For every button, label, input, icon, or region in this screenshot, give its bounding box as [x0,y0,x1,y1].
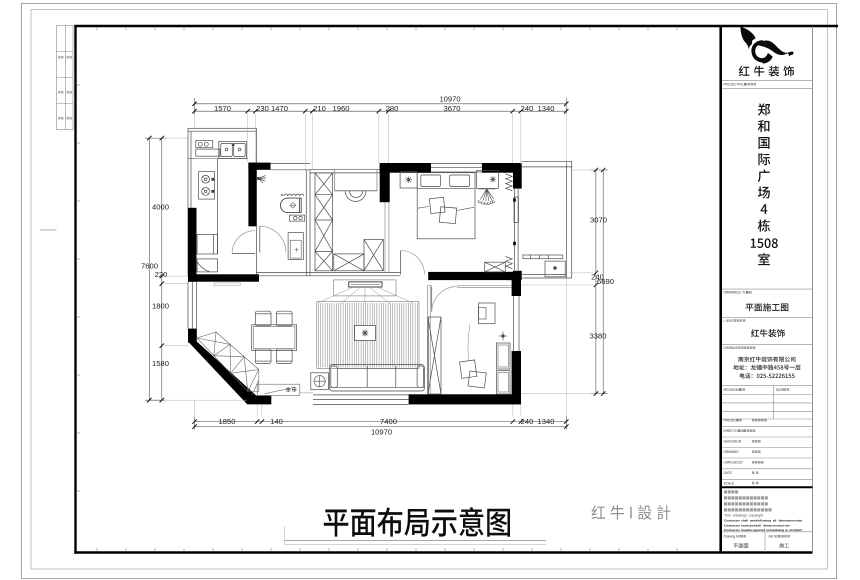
svg-text:SCALE: SCALE [724,481,734,485]
svg-text:PROJECT/FILE: PROJECT/FILE [724,83,747,87]
svg-text:immediately: immediately [766,528,784,532]
svg-text:work: work [749,519,758,523]
svg-text:DATE: DATE [724,471,732,475]
svg-text:240: 240 [521,417,534,426]
svg-text:240: 240 [521,104,534,113]
svg-text:dimensions: dimensions [779,519,796,523]
svg-text:This: This [724,514,731,518]
svg-text:1800: 1800 [152,302,169,311]
svg-text:architect: architect [789,528,802,532]
svg-text:1340: 1340 [538,417,555,426]
svg-text:1850: 1850 [219,417,236,426]
svg-text:220: 220 [155,270,168,279]
svg-text:GUIGUNLIN: GUIGUNLIN [724,440,742,444]
svg-text:4000: 4000 [152,203,169,212]
svg-text:check: check [748,523,757,527]
svg-text:drawings: drawings [733,514,748,518]
svg-text:280: 280 [386,104,399,113]
svg-text:140: 140 [270,417,283,426]
svg-text:3380: 3380 [590,332,607,341]
svg-text:DRAWING: DRAWING [724,450,740,454]
svg-text:following: following [757,519,771,523]
svg-text:1960: 1960 [333,104,350,113]
svg-text:7400: 7400 [380,417,397,426]
svg-text:REVISIONS: REVISIONS [724,388,741,392]
svg-text:copyright: copyright [749,514,764,518]
svg-text:CHROJECST: CHROJECST [724,461,744,465]
svg-text:reported: reported [753,528,766,532]
svg-text:must: must [741,528,748,532]
svg-text:210: 210 [313,104,326,113]
svg-text:1340: 1340 [538,104,555,113]
svg-text:must: must [741,523,748,527]
svg-text:dimensions: dimensions [763,523,780,527]
svg-text:3670: 3670 [444,104,461,113]
svg-text:DATE: DATE [776,388,784,392]
svg-text:TIME: TIME [736,346,744,350]
svg-text:1470: 1470 [271,104,288,113]
svg-text:shall: shall [741,519,748,523]
svg-text:1570: 1570 [214,104,231,113]
svg-text:Job: Job [768,535,773,539]
svg-text:all: all [773,519,777,523]
svg-text:230: 230 [256,104,269,113]
svg-text:Contractor: Contractor [724,523,741,527]
svg-text:10970: 10970 [439,95,460,104]
svg-text:Contractor: Contractor [724,528,741,532]
svg-text:Contractor: Contractor [724,519,741,523]
svg-text:in: in [785,528,788,532]
svg-text:3070: 3070 [590,216,607,225]
svg-text:10970: 10970 [371,428,392,437]
svg-text:1580: 1580 [152,359,169,368]
svg-text:Drawing: Drawing [724,535,736,539]
svg-text:all: all [757,523,761,527]
svg-text:IENT: IENT [726,319,733,323]
svg-text:site: site [784,523,790,527]
svg-text:only: only [796,519,803,523]
svg-text:6690: 6690 [597,277,614,286]
svg-text:DRAWING/L.TLE: DRAWING/L.TLE [724,291,749,295]
